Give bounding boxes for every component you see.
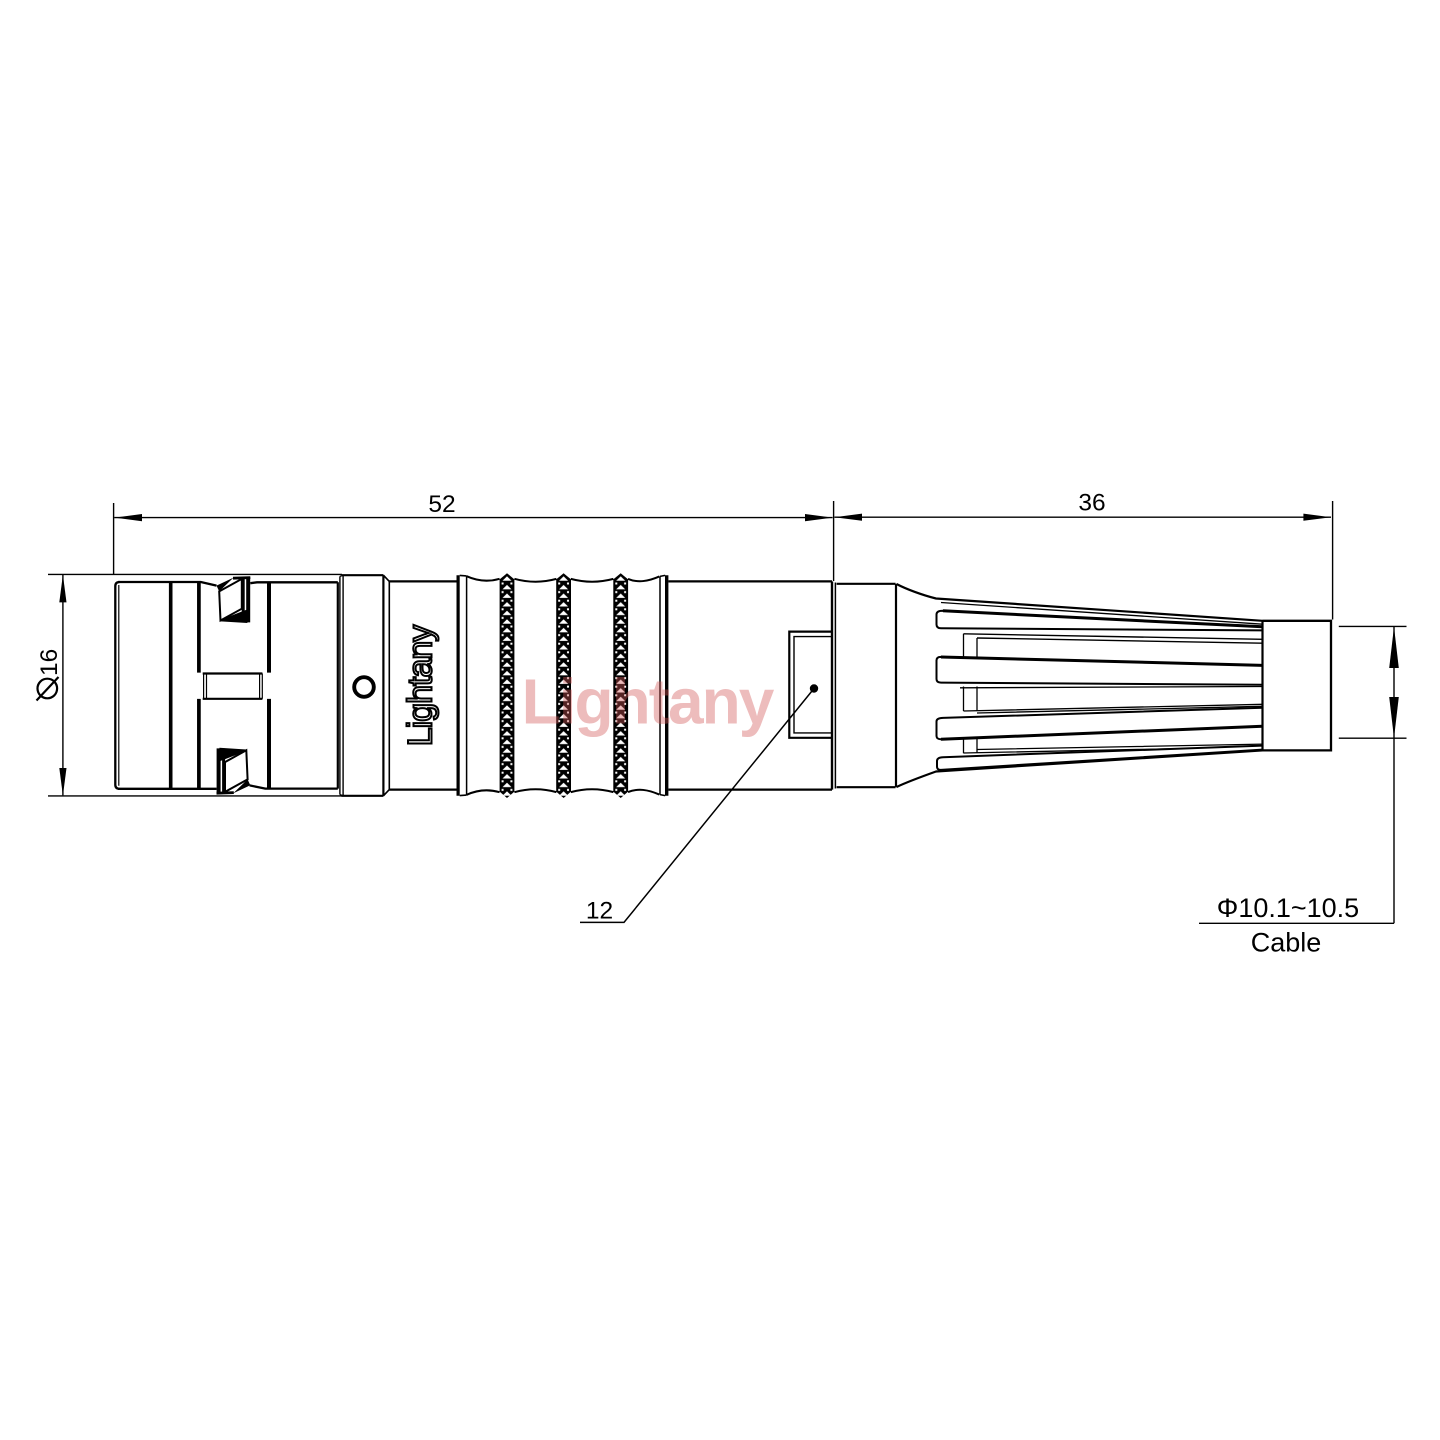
svg-text:Cable: Cable [1251,928,1322,958]
svg-text:Φ10.1~10.5: Φ10.1~10.5 [1217,893,1359,923]
svg-text:Lightany: Lightany [522,666,775,738]
svg-text:Lightany: Lightany [402,625,440,747]
svg-text:52: 52 [428,491,455,518]
svg-text:16: 16 [36,649,63,676]
svg-text:36: 36 [1078,490,1105,517]
svg-text:12: 12 [586,898,613,925]
